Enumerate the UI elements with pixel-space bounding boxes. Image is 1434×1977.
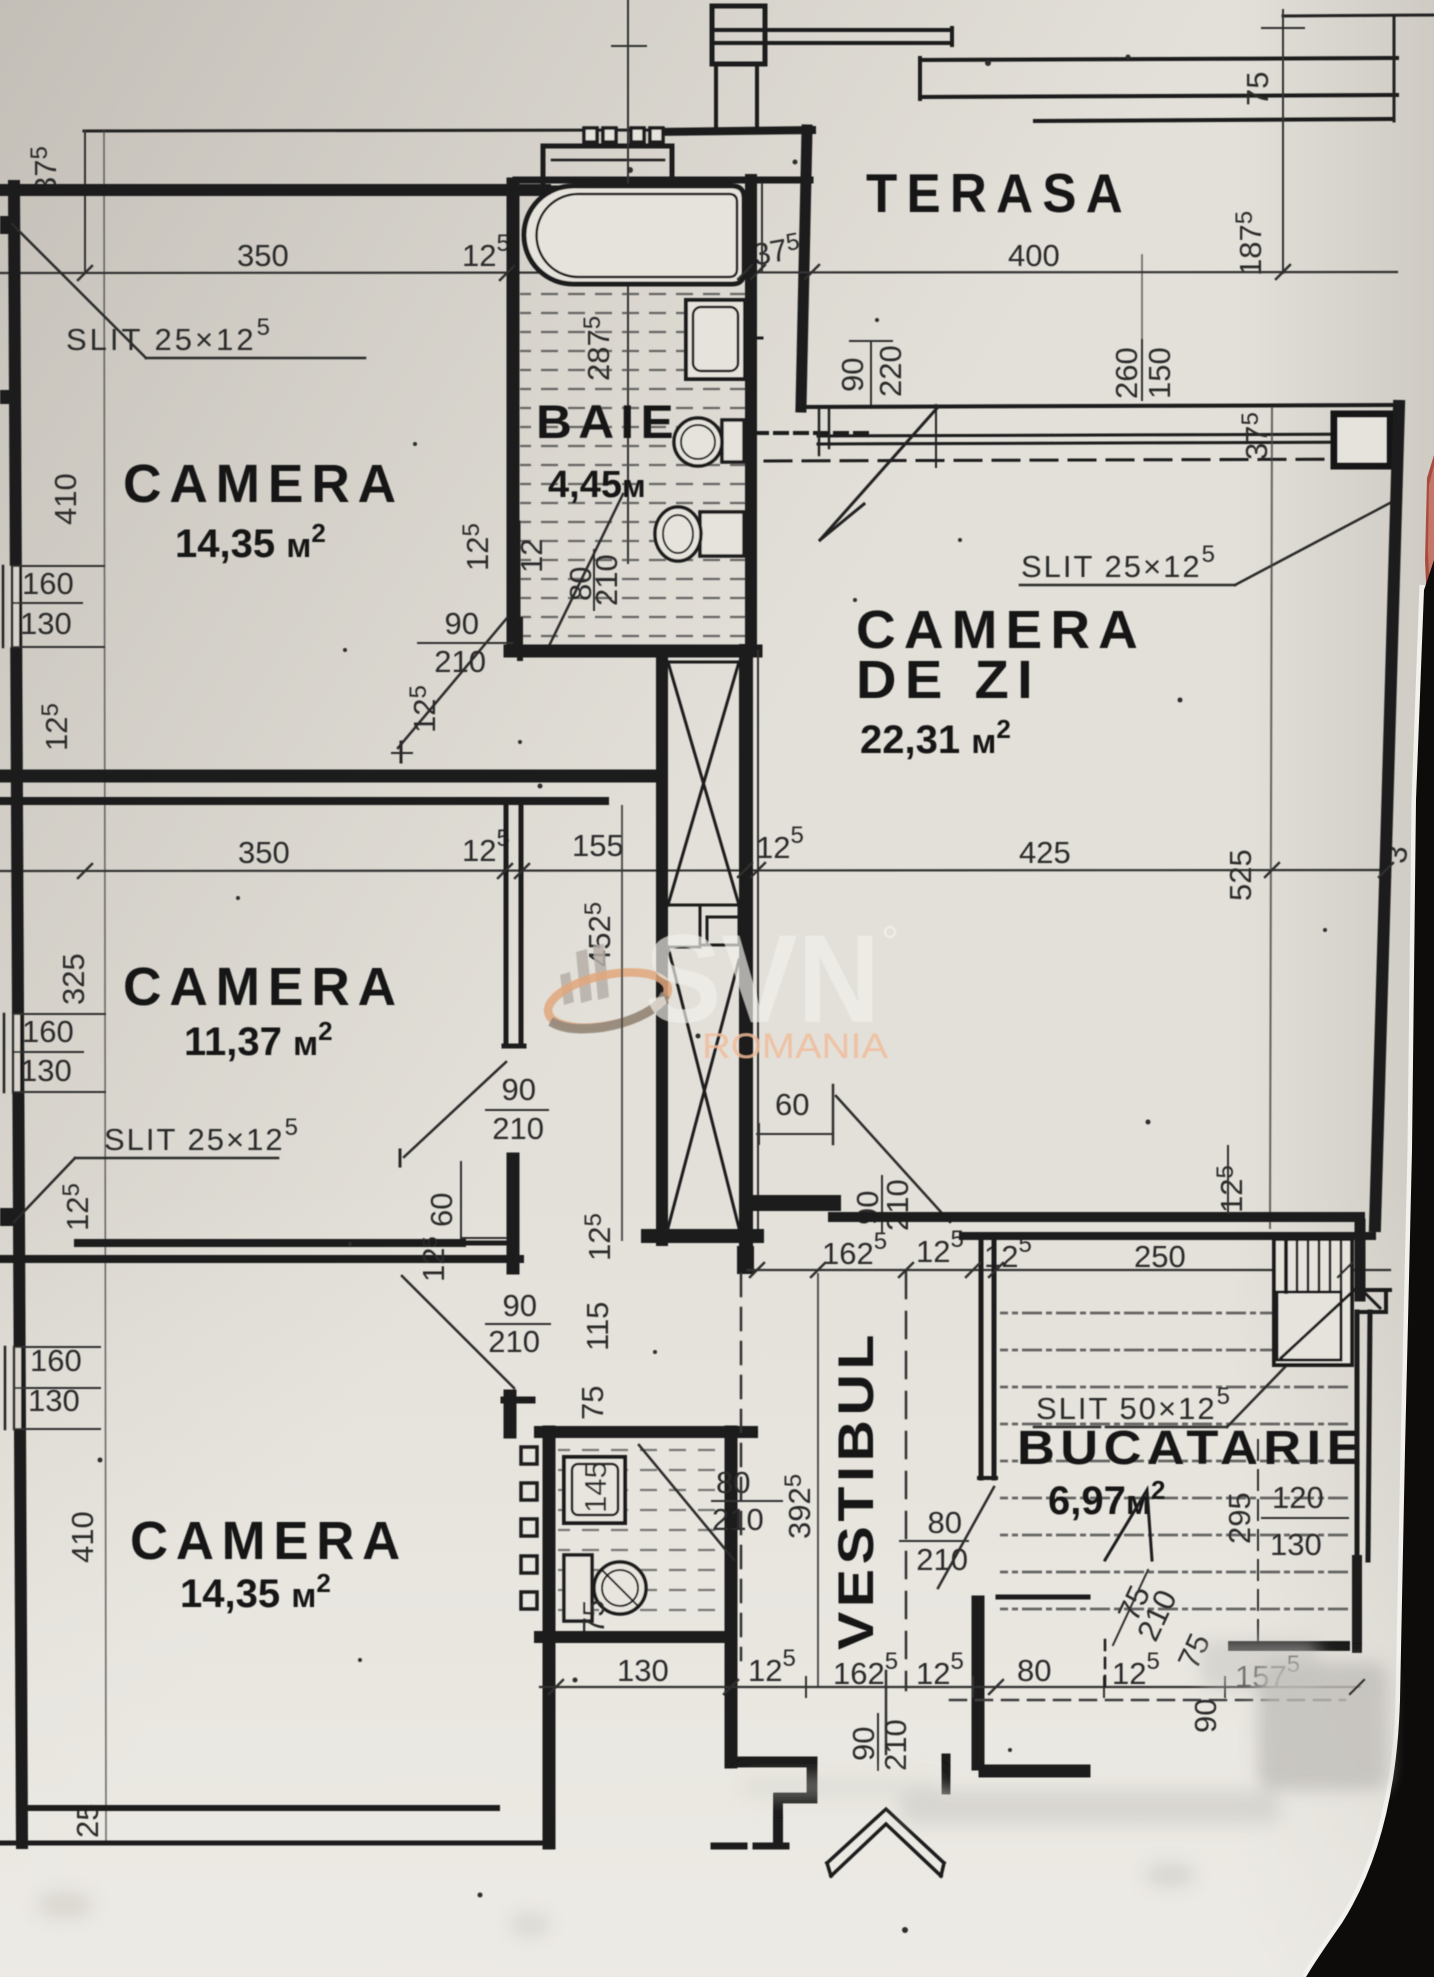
svg-text:4,45м: 4,45м [548,464,646,506]
svg-text:160: 160 [22,1014,74,1049]
svg-text:130: 130 [20,606,72,641]
svg-text:210: 210 [434,644,486,679]
svg-text:410: 410 [65,1511,100,1563]
svg-text:75: 75 [575,1386,610,1420]
svg-text:220: 220 [873,345,908,397]
svg-text:12: 12 [514,539,549,573]
svg-text:CAMERA: CAMERA [130,1511,408,1571]
svg-text:90: 90 [502,1072,536,1107]
svg-text:400: 400 [1008,238,1060,273]
svg-text:210: 210 [878,1719,913,1771]
svg-text:160: 160 [22,566,74,601]
svg-text:90: 90 [846,1727,881,1761]
svg-text:525: 525 [1223,849,1258,901]
svg-text:160: 160 [30,1343,82,1378]
svg-text:210: 210 [916,1542,968,1577]
svg-text:60: 60 [424,1193,459,1227]
svg-text:260: 260 [1109,347,1144,399]
svg-text:210: 210 [488,1324,540,1359]
svg-text:VESTIBUL: VESTIBUL [828,1330,884,1650]
svg-text:75: 75 [1240,72,1275,106]
svg-text:60: 60 [775,1087,809,1122]
svg-text:210: 210 [492,1111,544,1146]
svg-text:130: 130 [20,1053,72,1088]
svg-text:80: 80 [716,1465,750,1500]
svg-text:130: 130 [28,1383,80,1418]
svg-text:DE ZI: DE ZI [856,650,1041,710]
svg-text:120: 120 [1272,1480,1324,1515]
svg-text:115: 115 [580,1302,615,1351]
svg-text:425: 425 [1019,835,1071,870]
svg-text:90: 90 [445,606,479,641]
svg-text:80: 80 [1017,1653,1051,1688]
svg-text:325: 325 [56,953,91,1005]
svg-text:145: 145 [578,1461,613,1513]
svg-text:90: 90 [1188,1699,1223,1733]
svg-text:75: 75 [576,1600,611,1634]
svg-text:BAIE: BAIE [536,395,680,448]
svg-text:90: 90 [503,1288,537,1323]
svg-text:350: 350 [238,835,290,870]
svg-text:150: 150 [1142,347,1177,399]
svg-text:BUCATARIE: BUCATARIE [1017,1422,1367,1475]
svg-text:CAMERA: CAMERA [123,454,404,514]
svg-text:130: 130 [617,1653,669,1688]
svg-text:350: 350 [237,238,289,273]
svg-text:TERASA: TERASA [866,162,1132,224]
svg-text:130: 130 [1270,1527,1322,1562]
svg-text:90: 90 [835,358,870,392]
svg-text:210: 210 [712,1502,764,1537]
svg-text:210: 210 [880,1179,915,1231]
svg-text:155: 155 [572,828,624,863]
svg-text:295: 295 [1222,1492,1257,1544]
svg-text:CAMERA: CAMERA [123,957,404,1017]
svg-text:ROMANIA: ROMANIA [702,1027,889,1066]
svg-text:410: 410 [48,473,83,525]
svg-text:250: 250 [1134,1239,1186,1274]
svg-text:80: 80 [928,1505,962,1540]
